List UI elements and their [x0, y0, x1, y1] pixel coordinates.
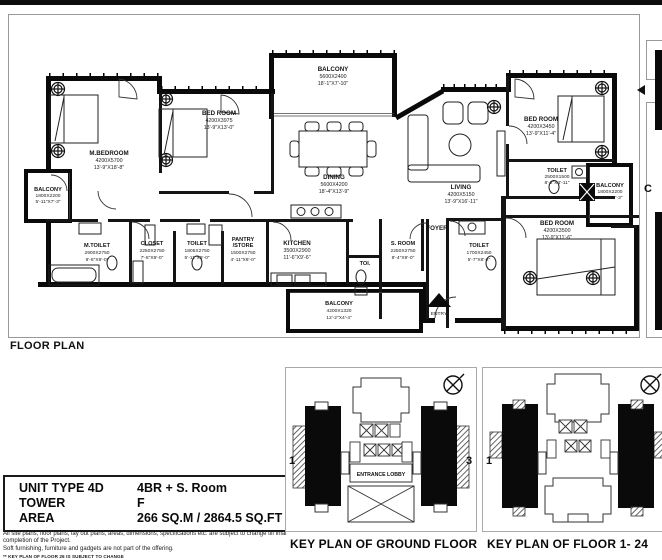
- svg-text:7'-5"X9'-0": 7'-5"X9'-0": [141, 255, 164, 261]
- svg-text:2250X2750: 2250X2750: [390, 248, 415, 254]
- svg-text:1500X2750: 1500X2750: [230, 250, 255, 256]
- area-label: AREA: [19, 511, 137, 526]
- svg-text:TOILET: TOILET: [469, 243, 489, 249]
- room-label-dining: DINING 5600X4200 18'-4"X13'-9": [319, 174, 350, 195]
- svg-text:4'-11"X9'-0": 4'-11"X9'-0": [230, 257, 255, 263]
- partial-page-icon: [637, 85, 645, 95]
- svg-text:BALCONY: BALCONY: [318, 66, 349, 73]
- floors-plan-shapes: [490, 374, 662, 522]
- svg-text:5'-11"X7'-3": 5'-11"X7'-3": [597, 195, 622, 201]
- svg-text:M.BEDROOM: M.BEDROOM: [89, 150, 128, 157]
- key-plan-floors-panel: 1 3: [482, 367, 662, 532]
- unit-type-label: UNIT TYPE 4D: [19, 481, 137, 496]
- room-label-kitchen: KITCHEN 3500X2900 11'-6"X9'-6": [283, 240, 311, 261]
- svg-text:3500X2900: 3500X2900: [283, 248, 310, 254]
- brochure-page: M.BEDROOM 4200X5700 13'-9"X18'-8" BED RO…: [0, 0, 662, 560]
- key-plan-ground-panel: ENTRANCE LOBBY 1 3: [285, 367, 477, 532]
- floor-plan-title: FLOOR PLAN: [10, 340, 85, 352]
- svg-text:4200X5700: 4200X5700: [95, 158, 122, 164]
- svg-text:S. ROOM: S. ROOM: [391, 241, 416, 247]
- unit-type-value: 4BR + S. Room: [137, 481, 227, 496]
- room-label-bedroom-br: BED ROOM 4200X3500 13'-9"X11'-6": [540, 220, 574, 241]
- svg-text:5600X2400: 5600X2400: [319, 74, 346, 80]
- room-label-closet: CLOSET 2250X2750 7'-5"X9'-0": [139, 241, 164, 261]
- svg-text:TOILET: TOILET: [187, 241, 207, 247]
- room-label-pantry: PANTRY /STORE 1500X2750 4'-11"X9'-0": [230, 237, 255, 263]
- room-label-toilet-foyer: TOILET 1700X2450 5'-7"X8'-2": [466, 243, 491, 263]
- unit-type-row: UNIT TYPE 4D 4BR + S. Room: [19, 481, 297, 496]
- room-label-bedroom-tr: BED ROOM 4200X3450 13'-9"X11'-4": [524, 116, 558, 137]
- room-label-mtoilet: M.TOILET 2900X2750 9'-6"X9'-0": [84, 243, 111, 263]
- key-plan-ground-caption: KEY PLAN OF GROUND FLOOR: [290, 537, 477, 551]
- svg-text:BED ROOM: BED ROOM: [540, 220, 574, 227]
- svg-text:4200X5150: 4200X5150: [447, 192, 474, 198]
- svg-text:5'-7"X8'-2": 5'-7"X8'-2": [468, 257, 491, 263]
- svg-text:5600X4200: 5600X4200: [320, 182, 347, 188]
- svg-text:2250X2750: 2250X2750: [139, 248, 164, 254]
- entrance-lobby-label: ENTRANCE LOBBY: [357, 472, 406, 478]
- svg-text:18'-1"X7'-10": 18'-1"X7'-10": [318, 81, 349, 87]
- area-row: AREA 266 SQ.M / 2864.5 SQ.FT: [19, 511, 297, 526]
- svg-text:4200X1320: 4200X1320: [326, 308, 351, 314]
- unit-info-box: UNIT TYPE 4D 4BR + S. Room TOWER F AREA …: [3, 475, 299, 532]
- room-label-mbedroom: M.BEDROOM 4200X5700 13'-9"X18'-8": [89, 150, 128, 171]
- partial-letter: C: [644, 183, 652, 195]
- room-label-balcony-left: BALCONY 1800X2200 5'-11"X7'-3": [34, 187, 62, 205]
- svg-text:M.TOILET: M.TOILET: [84, 243, 111, 249]
- toi-label: TOI.: [360, 261, 371, 267]
- key-plan-ground-drawing: ENTRANCE LOBBY 1 3: [286, 368, 476, 531]
- svg-text:13'-9"X11'-6": 13'-9"X11'-6": [542, 235, 572, 241]
- area-value: 266 SQ.M / 2864.5 SQ.FT: [137, 511, 282, 526]
- key-plan-floors-caption: KEY PLAN OF FLOOR 1- 24: [487, 537, 648, 551]
- entry-label: ENTRY: [431, 311, 448, 317]
- adjacent-plan-wall: [655, 50, 662, 130]
- svg-text:2500X1500: 2500X1500: [544, 174, 569, 180]
- svg-text:11'-6"X9'-6": 11'-6"X9'-6": [283, 255, 310, 261]
- svg-text:/STORE: /STORE: [233, 243, 254, 249]
- adjacent-plan-wall: [655, 212, 662, 330]
- svg-text:TOILET: TOILET: [547, 168, 567, 174]
- svg-text:BALCONY: BALCONY: [34, 187, 62, 193]
- svg-text:13'-9"X13'-0": 13'-9"X13'-0": [204, 125, 235, 131]
- svg-text:2900X2750: 2900X2750: [84, 250, 109, 256]
- svg-text:4200X3975: 4200X3975: [205, 118, 232, 124]
- key-plan-floors-drawing: 1 3: [483, 368, 662, 531]
- svg-text:5'-11"X9'-0": 5'-11"X9'-0": [184, 255, 209, 261]
- svg-text:BED ROOM: BED ROOM: [202, 110, 236, 117]
- balcony-sills: [70, 114, 590, 293]
- room-label-toilet-right: TOILET 2500X1500 8'-2"X4'-11": [544, 168, 569, 186]
- tower-value: F: [137, 496, 145, 511]
- foyer-label: FOYER: [426, 225, 448, 232]
- svg-text:1800X2200: 1800X2200: [35, 193, 60, 199]
- svg-text:13'-9"X18'-8": 13'-9"X18'-8": [94, 165, 125, 171]
- svg-text:5'-11"X7'-3": 5'-11"X7'-3": [35, 199, 60, 205]
- svg-text:9'-6"X9'-0": 9'-6"X9'-0": [86, 257, 109, 263]
- svg-text:BALCONY: BALCONY: [596, 183, 624, 189]
- svg-text:1800X2200: 1800X2200: [597, 189, 622, 195]
- tower-1-number: 1: [289, 455, 295, 467]
- room-label-living: LIVING 4200X5150 13'-9"X16'-11": [444, 184, 477, 205]
- room-label-balcony-right: BALCONY 1800X2200 5'-11"X7'-3": [596, 183, 624, 201]
- top-black-bar: [0, 0, 662, 5]
- svg-text:12'-2"X4'-4": 12'-2"X4'-4": [326, 315, 352, 321]
- room-label-bedroom-2: BED ROOM 4200X3975 13'-9"X13'-0": [202, 110, 236, 131]
- floor-plan-panel: M.BEDROOM 4200X5700 13'-9"X18'-8" BED RO…: [8, 14, 640, 338]
- svg-text:4200X3450: 4200X3450: [527, 124, 554, 130]
- tower-3-number: 3: [466, 455, 472, 467]
- tower-label: TOWER: [19, 496, 137, 511]
- svg-text:KITCHEN: KITCHEN: [283, 240, 311, 247]
- room-label-balcony-top: BALCONY 5600X2400 18'-1"X7'-10": [318, 66, 349, 87]
- svg-text:18'-4"X13'-9": 18'-4"X13'-9": [319, 189, 350, 195]
- floor-plan-drawing: M.BEDROOM 4200X5700 13'-9"X18'-8" BED RO…: [9, 15, 639, 337]
- tower-1-number: 1: [486, 455, 492, 467]
- disclaimer-line-3: ** KEY PLAN OF FLOOR 26 IS SUBJECT TO CH…: [3, 554, 297, 559]
- svg-text:1700X2450: 1700X2450: [466, 250, 491, 256]
- svg-text:DINING: DINING: [323, 174, 345, 181]
- svg-text:BALCONY: BALCONY: [325, 301, 353, 307]
- svg-text:CLOSET: CLOSET: [141, 241, 164, 247]
- svg-text:13'-9"X16'-11": 13'-9"X16'-11": [444, 199, 477, 205]
- room-label-sroom: S. ROOM 2250X2750 8'-4"X9'-0": [390, 241, 415, 261]
- svg-text:13'-9"X11'-4": 13'-9"X11'-4": [526, 131, 556, 137]
- svg-text:BED ROOM: BED ROOM: [524, 116, 558, 123]
- svg-text:LIVING: LIVING: [451, 184, 472, 191]
- north-icon: [641, 374, 661, 394]
- ground-plan-shapes: [293, 378, 469, 522]
- svg-text:4200X3500: 4200X3500: [543, 228, 570, 234]
- disclaimer-line-1: All site plans, floor plans, lay out pla…: [3, 531, 297, 545]
- tower-row: TOWER F: [19, 496, 297, 511]
- svg-text:8'-2"X4'-11": 8'-2"X4'-11": [544, 180, 569, 186]
- north-icon: [444, 374, 464, 394]
- room-label-toilet-1805: TOILET 1805X2750 5'-11"X9'-0": [184, 241, 209, 261]
- svg-text:8'-4"X9'-0": 8'-4"X9'-0": [392, 255, 415, 261]
- svg-text:1805X2750: 1805X2750: [184, 248, 209, 254]
- disclaimer: All site plans, floor plans, lay out pla…: [3, 531, 297, 559]
- shaft: [579, 183, 595, 201]
- room-label-balcony-bottom: BALCONY 4200X1320 12'-2"X4'-4": [325, 301, 353, 321]
- disclaimer-line-2: Soft furnishing, furniture and gadgets a…: [3, 546, 297, 553]
